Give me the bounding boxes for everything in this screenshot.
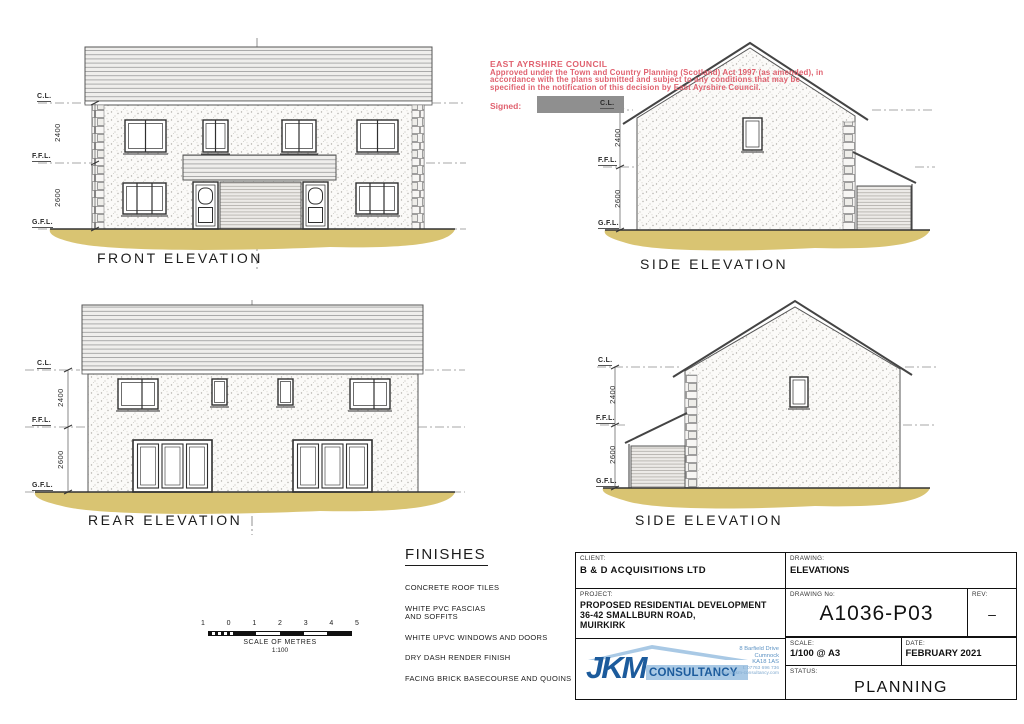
finish-item: DRY DASH RENDER FINISH xyxy=(405,654,580,663)
scale-segment xyxy=(233,632,257,635)
side-bottom-dim-2400: 2400 xyxy=(608,385,617,404)
finish-item: CONCRETE ROOF TILES xyxy=(405,584,580,593)
scale-tick: 4 xyxy=(329,620,333,627)
scale-tick: 5 xyxy=(355,620,359,627)
address-line: 8 Barfield Drive xyxy=(716,646,779,653)
rear-ffl-label: F.F.L. xyxy=(32,417,51,426)
scale-bar-ticks: 1 0 1 2 3 4 5 xyxy=(201,620,359,627)
status-label: STATUS: xyxy=(790,668,1012,675)
jkm-consultancy-logo: JKM CONSULTANCY 8 Barfield Drive Cumnock… xyxy=(580,641,781,697)
address-line: KA18 1AS xyxy=(716,659,779,666)
title-block: CLIENT: B & D ACQUISITIONS LTD PROJECT: … xyxy=(575,552,1017,700)
scale-ratio: 1:100 xyxy=(195,647,365,654)
signed-label: Signed: xyxy=(490,101,521,111)
rear-dim-2400: 2400 xyxy=(56,388,65,407)
scale-cell: SCALE: 1/100 @ A3 xyxy=(786,638,902,666)
logo-jkm-text: JKM xyxy=(586,653,645,683)
side-top-ffl-label: F.F.L. xyxy=(598,157,617,166)
front-gfl-label: G.F.L. xyxy=(32,219,53,228)
client-name: B & D ACQUISITIONS LTD xyxy=(580,565,781,576)
client-label: CLIENT: xyxy=(580,555,781,562)
side-elevation-bottom-drawing xyxy=(595,295,940,540)
scale-caption: SCALE OF METRES xyxy=(195,639,365,646)
side-bottom-dim-2600: 2600 xyxy=(608,445,617,464)
drawing-sheet: C.L. F.F.L. G.F.L. 2400 2600 FRONT ELEVA… xyxy=(0,0,1024,724)
finish-item: FACING BRICK BASECOURSE AND QUOINS xyxy=(405,675,580,684)
side-top-dim-2400: 2400 xyxy=(613,128,622,147)
project-line: PROPOSED RESIDENTIAL DEVELOPMENT xyxy=(580,600,781,610)
front-elevation-drawing xyxy=(30,30,470,280)
rear-gfl-label: G.F.L. xyxy=(32,482,53,491)
address-line: Cumnock xyxy=(716,653,779,660)
side-bottom-ffl-label: F.F.L. xyxy=(596,415,615,424)
revision-label: REV: xyxy=(972,591,1012,598)
scale-segment xyxy=(327,632,351,635)
date-value: FEBRUARY 2021 xyxy=(906,648,1013,659)
status-value: PLANNING xyxy=(790,679,1012,697)
scale-tick: 1 xyxy=(201,620,205,627)
side-elevation-top-title: SIDE ELEVATION xyxy=(640,256,788,272)
scale-tick: 3 xyxy=(304,620,308,627)
scale-value: 1/100 @ A3 xyxy=(790,648,897,659)
side-bottom-gfl-label: G.F.L. xyxy=(596,478,617,487)
scale-tick: 1 xyxy=(252,620,256,627)
revision-value: – xyxy=(972,606,1012,622)
scale-segment xyxy=(209,632,233,635)
drawing-number-cell: DRAWING No: A1036-P03 xyxy=(786,589,968,636)
front-dim-2400: 2400 xyxy=(53,123,62,142)
scale-tick: 0 xyxy=(227,620,231,627)
rear-dim-2600: 2600 xyxy=(56,450,65,469)
side-top-dim-2600: 2600 xyxy=(613,189,622,208)
front-dim-2600: 2600 xyxy=(53,188,62,207)
side-top-gfl-label: G.F.L. xyxy=(598,220,619,229)
rear-cl-label: C.L. xyxy=(37,360,51,369)
project-line: MUIRKIRK xyxy=(580,620,781,630)
finish-item: WHITE PVC FASCIAS AND SOFFITS xyxy=(405,605,580,622)
scale-segment xyxy=(280,632,304,635)
scale-segment xyxy=(304,632,328,635)
drawing-title: ELEVATIONS xyxy=(790,565,1012,576)
scale-bar-graphic xyxy=(208,631,352,636)
rear-elevation-drawing xyxy=(20,295,470,540)
side-bottom-cl-label: C.L. xyxy=(598,357,612,366)
status-cell: STATUS: PLANNING xyxy=(786,666,1016,699)
project-label: PROJECT: xyxy=(580,591,781,598)
logo-address: 8 Barfield Drive Cumnock KA18 1AS t: 077… xyxy=(716,646,779,677)
side-top-cl-label: C.L. xyxy=(600,100,614,109)
drawing-label: DRAWING: xyxy=(790,555,1012,562)
project-line: 36-42 SMALLBURN ROAD, xyxy=(580,610,781,620)
date-cell: DATE: FEBRUARY 2021 xyxy=(902,638,1017,666)
finish-item: WHITE UPVC WINDOWS AND DOORS xyxy=(405,634,580,643)
finishes-panel: FINISHES CONCRETE ROOF TILES WHITE PVC F… xyxy=(405,546,580,683)
rear-elevation-title: REAR ELEVATION xyxy=(88,512,242,528)
scale-segment xyxy=(256,632,280,635)
scale-label: SCALE: xyxy=(790,640,897,647)
drawing-cell: DRAWING: ELEVATIONS xyxy=(786,553,1016,589)
client-cell: CLIENT: B & D ACQUISITIONS LTD xyxy=(576,553,785,589)
scale-tick: 2 xyxy=(278,620,282,627)
finishes-title: FINISHES xyxy=(405,546,488,566)
front-ffl-label: F.F.L. xyxy=(32,153,51,162)
side-elevation-bottom-title: SIDE ELEVATION xyxy=(635,512,783,528)
project-cell: PROJECT: PROPOSED RESIDENTIAL DEVELOPMEN… xyxy=(576,589,785,639)
stamp-line-3: specified in the notification of this de… xyxy=(490,84,970,91)
council-approval-stamp: EAST AYRSHIRE COUNCIL Approved under the… xyxy=(490,59,970,91)
drawing-number: A1036-P03 xyxy=(790,602,963,626)
date-label: DATE: xyxy=(906,640,1013,647)
front-cl-label: C.L. xyxy=(37,93,51,102)
front-elevation-title: FRONT ELEVATION xyxy=(97,250,263,266)
revision-cell: REV: – xyxy=(968,589,1016,636)
address-line: e: mail@jkm-consultancy.com xyxy=(716,671,779,676)
drawing-number-label: DRAWING No: xyxy=(790,591,963,598)
logo-cell: JKM CONSULTANCY 8 Barfield Drive Cumnock… xyxy=(576,639,785,699)
